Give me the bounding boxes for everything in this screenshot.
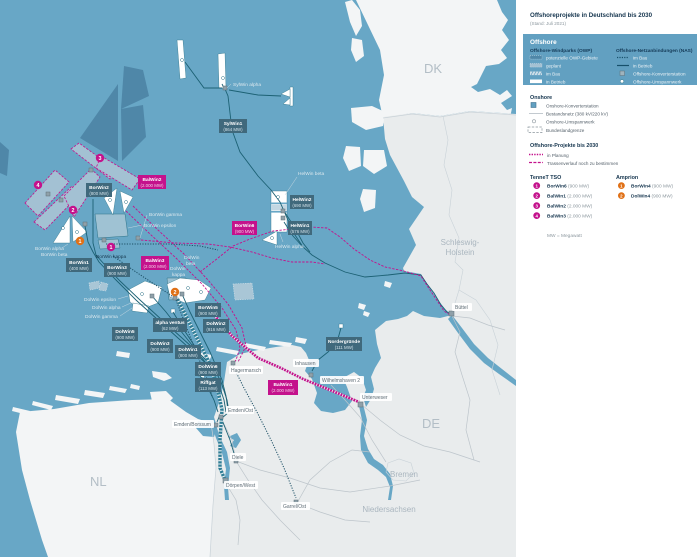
svg-text:DolWin: DolWin [170, 266, 186, 272]
svg-text:DolWin gamma: DolWin gamma [85, 314, 118, 320]
svg-text:Unterweser: Unterweser [362, 395, 388, 401]
svg-text:Emden/Borssum: Emden/Borssum [174, 422, 211, 428]
svg-text:Onshore-Konverterstation: Onshore-Konverterstation [546, 104, 599, 109]
svg-text:Amprion: Amprion [616, 175, 638, 181]
svg-text:TenneT TSO: TenneT TSO [530, 175, 561, 181]
svg-text:(690 MW): (690 MW) [292, 203, 312, 208]
svg-text:Offshore: Offshore [530, 39, 557, 46]
svg-text:Bremen: Bremen [390, 470, 418, 479]
svg-text:DolWin: DolWin [184, 255, 200, 261]
svg-text:(Stand: Juli 2021): (Stand: Juli 2021) [530, 21, 566, 26]
svg-text:1: 1 [110, 245, 113, 251]
svg-text:(800 MW): (800 MW) [178, 353, 198, 358]
svg-text:SylWin alpha: SylWin alpha [233, 82, 261, 88]
svg-text:(2.000 MW): (2.000 MW) [272, 388, 295, 393]
svg-text:BalWin3 (2.000 MW): BalWin3 (2.000 MW) [547, 214, 593, 220]
svg-text:2: 2 [72, 208, 75, 214]
svg-text:MW = Megawatt: MW = Megawatt [547, 233, 582, 239]
svg-text:Niedersachsen: Niedersachsen [362, 505, 415, 514]
svg-text:(576 MW): (576 MW) [290, 229, 310, 234]
svg-text:Offshore-Konverterstation: Offshore-Konverterstation [633, 72, 686, 77]
svg-text:BorWin alpha: BorWin alpha [35, 246, 64, 252]
svg-text:Offshore-Projekte bis 2030: Offshore-Projekte bis 2030 [530, 143, 598, 149]
svg-text:kappa: kappa [172, 272, 185, 278]
svg-text:Hagermarsch: Hagermarsch [231, 368, 261, 374]
svg-text:in Planung: in Planung [547, 153, 569, 158]
svg-text:BorWin gamma: BorWin gamma [149, 212, 182, 218]
svg-text:Bestandsnetz (380 kV/220 kV): Bestandsnetz (380 kV/220 kV) [546, 112, 609, 117]
svg-text:HelWin beta: HelWin beta [298, 171, 324, 177]
svg-text:DolWin epsilon: DolWin epsilon [84, 297, 116, 303]
svg-text:DK: DK [424, 61, 442, 76]
svg-text:BorWin epsilon: BorWin epsilon [144, 223, 177, 229]
svg-text:Bundeslandgrenze: Bundeslandgrenze [546, 128, 585, 133]
svg-text:Diele: Diele [232, 455, 244, 461]
svg-text:(916 MW): (916 MW) [206, 327, 226, 332]
svg-text:BalWin2 (2.000 MW): BalWin2 (2.000 MW) [547, 204, 593, 210]
svg-text:Offshore-Umspannwerk: Offshore-Umspannwerk [633, 80, 682, 85]
svg-text:HelWin alpha: HelWin alpha [275, 244, 304, 250]
svg-text:(62 MW): (62 MW) [162, 326, 179, 331]
svg-text:(900 MW): (900 MW) [150, 347, 170, 352]
svg-text:3: 3 [99, 156, 102, 162]
svg-text:im Bau: im Bau [633, 56, 648, 61]
svg-text:Holstein: Holstein [446, 248, 475, 257]
svg-text:Wilhelmshaven 2: Wilhelmshaven 2 [322, 378, 360, 384]
svg-text:Offshoreprojekte in Deutschlan: Offshoreprojekte in Deutschland bis 2030 [530, 12, 653, 19]
svg-text:(900 MW): (900 MW) [107, 271, 127, 276]
svg-text:(900 MW): (900 MW) [235, 229, 255, 234]
svg-text:potenzielle OWP-Gebiete: potenzielle OWP-Gebiete [546, 56, 598, 61]
svg-text:(900 MW): (900 MW) [198, 311, 218, 316]
svg-text:beta: beta [186, 261, 196, 267]
svg-text:Dörpen/West: Dörpen/West [226, 483, 256, 489]
svg-text:in Betrieb: in Betrieb [546, 80, 566, 85]
svg-text:Offshore-Netzanbindungen (NAS): Offshore-Netzanbindungen (NAS) [616, 48, 693, 54]
svg-text:in Betrieb: in Betrieb [633, 64, 653, 69]
svg-text:Onshore-Umspannwerk: Onshore-Umspannwerk [546, 120, 595, 125]
svg-text:Garrel/Ost: Garrel/Ost [283, 504, 307, 510]
svg-text:BorWin4 (900 MW): BorWin4 (900 MW) [631, 184, 673, 190]
svg-text:geplant: geplant [546, 64, 562, 69]
svg-text:BalWin1 (2.000 MW): BalWin1 (2.000 MW) [547, 194, 593, 200]
svg-text:(113 MW): (113 MW) [199, 386, 218, 391]
svg-text:(900 MW): (900 MW) [198, 370, 218, 375]
svg-text:BorWin beta: BorWin beta [41, 252, 68, 258]
svg-text:(900 MW): (900 MW) [115, 335, 135, 340]
svg-text:im Bau: im Bau [546, 72, 561, 77]
svg-text:Büttel: Büttel [455, 305, 468, 311]
svg-text:Emden/Ost: Emden/Ost [228, 408, 254, 414]
svg-text:Inhausen: Inhausen [295, 361, 316, 367]
svg-text:Trassenverlauf noch zu bestimm: Trassenverlauf noch zu bestimmen [547, 161, 619, 166]
svg-text:DolWin alpha: DolWin alpha [92, 305, 121, 311]
svg-text:DolWin4 (900 MW): DolWin4 (900 MW) [631, 194, 673, 200]
svg-text:4: 4 [37, 183, 40, 189]
svg-text:BorWin6 (900 MW): BorWin6 (900 MW) [547, 184, 589, 190]
svg-text:1: 1 [79, 239, 82, 245]
svg-text:(2.000 MW): (2.000 MW) [144, 264, 167, 269]
svg-text:NL: NL [90, 474, 107, 489]
svg-text:(111 MW): (111 MW) [335, 345, 354, 350]
svg-text:BorWin kappa: BorWin kappa [96, 254, 126, 260]
svg-text:Offshore-Windparks (OWP): Offshore-Windparks (OWP) [530, 48, 592, 54]
svg-text:(800 MW): (800 MW) [89, 191, 109, 196]
svg-text:(864 MW): (864 MW) [223, 127, 243, 132]
svg-text:Schleswig-: Schleswig- [441, 238, 480, 247]
svg-text:DE: DE [422, 416, 440, 431]
svg-text:(2.000 MW): (2.000 MW) [141, 183, 164, 188]
svg-text:(400 MW): (400 MW) [69, 266, 89, 271]
svg-text:2: 2 [174, 290, 177, 296]
svg-text:Onshore: Onshore [530, 95, 552, 101]
